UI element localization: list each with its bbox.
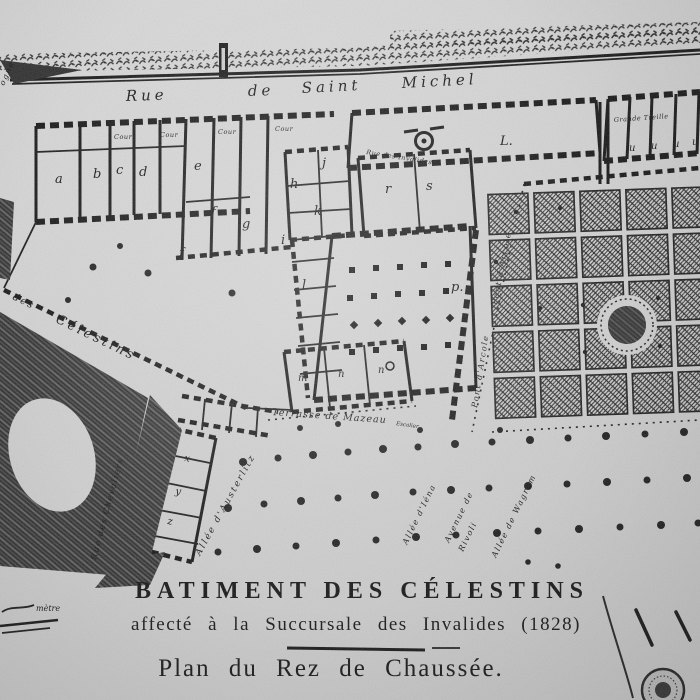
map-drawing: ogne Rue de Saint Michel [0, 0, 700, 700]
scanned-map-photo: ogne Rue de Saint Michel [0, 0, 700, 700]
paper-grain [0, 0, 700, 700]
